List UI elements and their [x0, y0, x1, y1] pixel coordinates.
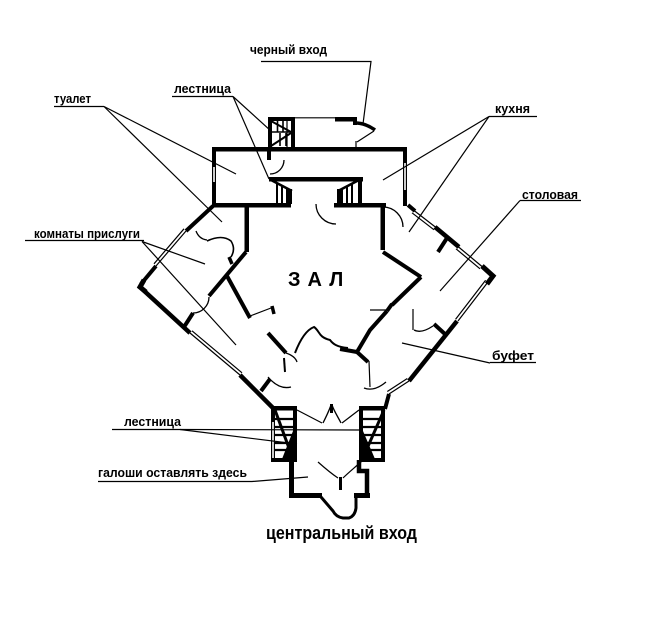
svg-text:буфет: буфет — [492, 348, 534, 363]
svg-text:комнаты прислуги: комнаты прислуги — [34, 226, 140, 241]
svg-text:лестница: лестница — [124, 414, 182, 429]
svg-text:туалет: туалет — [54, 91, 91, 106]
svg-text:ЗАЛ: ЗАЛ — [288, 269, 350, 291]
svg-text:столовая: столовая — [522, 187, 578, 202]
svg-text:центральный вход: центральный вход — [266, 523, 417, 543]
svg-text:кухня: кухня — [495, 101, 530, 116]
svg-text:лестница: лестница — [174, 81, 232, 96]
svg-text:галоши оставлять здесь: галоши оставлять здесь — [98, 465, 247, 480]
svg-text:черный вход: черный вход — [250, 42, 328, 57]
